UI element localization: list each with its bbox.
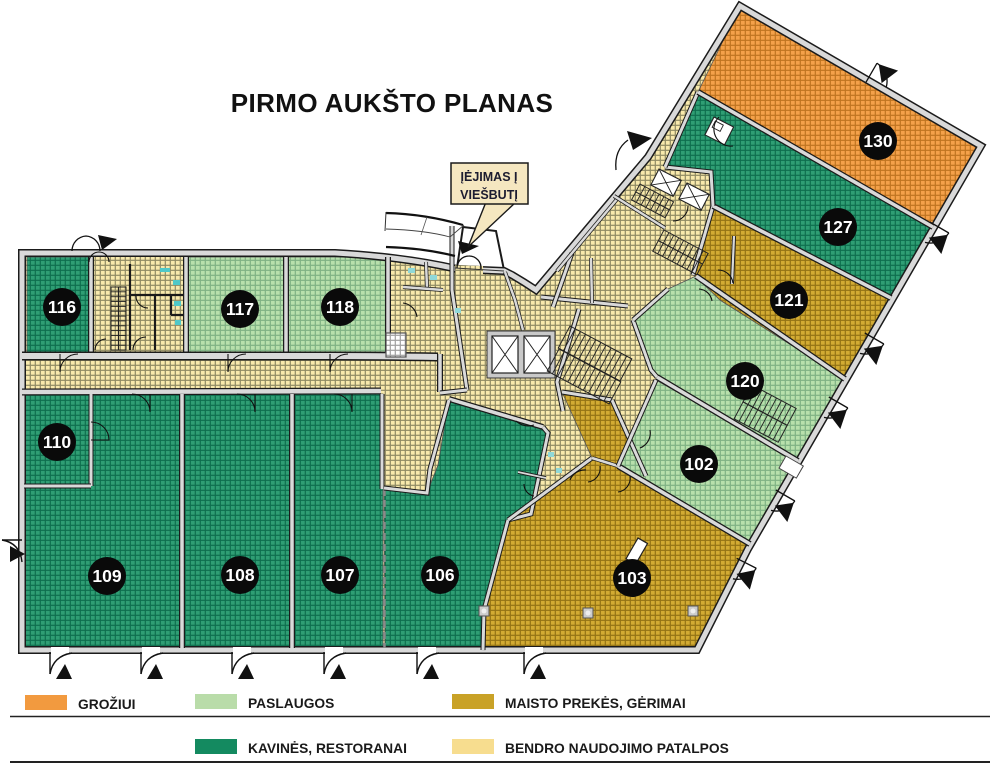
- svg-text:107: 107: [325, 565, 354, 585]
- svg-text:117: 117: [226, 299, 254, 319]
- svg-text:GROŽIUI: GROŽIUI: [78, 695, 136, 712]
- svg-text:120: 120: [730, 371, 759, 391]
- svg-text:110: 110: [43, 432, 71, 452]
- svg-text:PIRMO AUKŠTO PLANAS: PIRMO AUKŠTO PLANAS: [231, 88, 554, 118]
- svg-text:MAISTO PREKĖS, GĖRIMAI: MAISTO PREKĖS, GĖRIMAI: [505, 695, 686, 711]
- svg-text:130: 130: [863, 131, 892, 151]
- svg-text:VIEŠBUTĮ: VIEŠBUTĮ: [460, 187, 518, 202]
- svg-text:127: 127: [823, 217, 852, 237]
- svg-text:BENDRO NAUDOJIMO PATALPOS: BENDRO NAUDOJIMO PATALPOS: [505, 741, 729, 756]
- svg-text:ĮĖJIMAS Į: ĮĖJIMAS Į: [461, 169, 518, 184]
- svg-text:108: 108: [225, 565, 254, 585]
- svg-text:116: 116: [48, 297, 76, 317]
- svg-text:KAVINĖS, RESTORANAI: KAVINĖS, RESTORANAI: [248, 740, 407, 756]
- svg-text:103: 103: [617, 568, 646, 588]
- svg-text:109: 109: [92, 566, 121, 586]
- svg-text:102: 102: [684, 454, 713, 474]
- svg-text:121: 121: [774, 290, 803, 310]
- svg-text:106: 106: [425, 565, 454, 585]
- svg-text:118: 118: [326, 297, 354, 317]
- svg-text:PASLAUGOS: PASLAUGOS: [248, 696, 334, 711]
